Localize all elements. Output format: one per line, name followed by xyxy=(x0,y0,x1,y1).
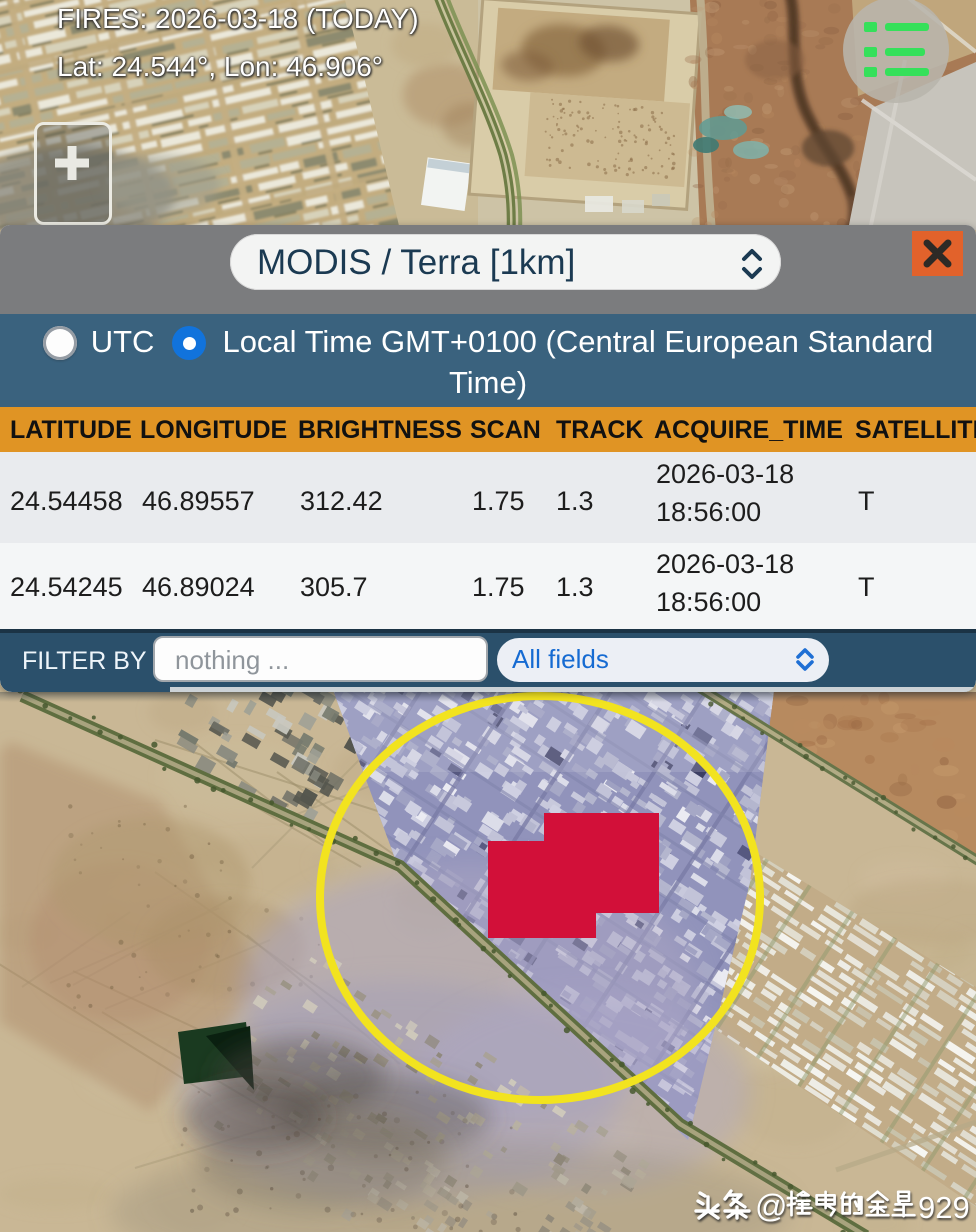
svg-text:@: @ xyxy=(755,1188,787,1224)
svg-text:929: 929 xyxy=(918,1190,970,1225)
